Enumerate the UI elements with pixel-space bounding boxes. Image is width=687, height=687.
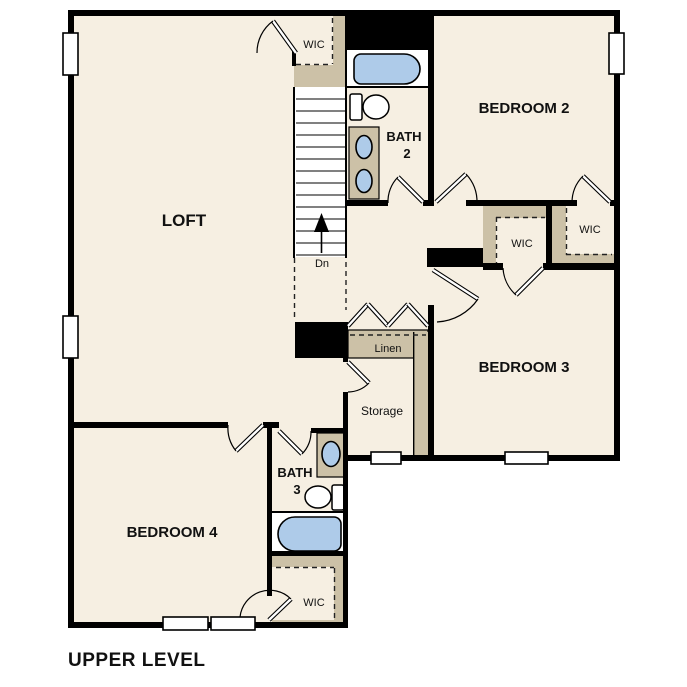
wall-bedroom3-left — [428, 305, 434, 455]
toilet-icon — [332, 485, 344, 510]
toilet-icon — [363, 95, 389, 119]
toilet-icon — [305, 486, 331, 508]
sink-icon — [322, 442, 340, 467]
wic-bedroom4-label: WIC — [303, 597, 324, 609]
wall-wic-divider — [546, 206, 552, 266]
bedroom2-label: BEDROOM 2 — [479, 100, 570, 117]
bath2-label: BATH — [386, 129, 421, 144]
wall-under-wic2 — [552, 263, 614, 270]
toilet-icon — [350, 94, 362, 120]
bath3-label: BATH — [277, 465, 312, 480]
floor-plan-page: LOFT BEDROOM 2 BEDROOM 3 BEDROOM 4 BATH … — [0, 0, 687, 687]
storage-label: Storage — [361, 404, 403, 418]
storage-shelf-edge — [413, 332, 414, 455]
wic-loft-shelf-bottom — [294, 65, 345, 87]
wall-bedroom2-left — [428, 16, 434, 200]
bedroom4-label: BEDROOM 4 — [127, 524, 219, 541]
storage-shelf-band — [414, 332, 428, 455]
linen-label: Linen — [375, 343, 402, 355]
wic-bedroom3-label: WIC — [511, 238, 532, 250]
window — [609, 33, 624, 74]
wall-exterior-right — [614, 10, 620, 461]
wall-tub-niche-edge — [347, 86, 428, 88]
bathtub-icon — [278, 517, 341, 551]
bathtub-icon — [354, 54, 420, 84]
wall-jamb — [423, 200, 434, 206]
wall-plumbing-chase — [345, 10, 434, 50]
wall-bedroom4-north — [74, 422, 228, 428]
window — [63, 316, 78, 358]
wall-bedroom2-south-end — [610, 200, 620, 206]
wall-jamb — [263, 422, 279, 428]
wall-bath3-north — [311, 428, 345, 433]
wic-bedroom2-label: WIC — [579, 224, 600, 236]
wall-bedroom2-south — [466, 200, 577, 206]
stairs-down-label: Dn — [315, 258, 329, 270]
wall-under-wic3 — [483, 263, 503, 270]
window — [163, 617, 208, 630]
bedroom3-label: BEDROOM 3 — [479, 359, 570, 376]
wall-column-right — [343, 392, 348, 628]
plan-level-title: UPPER LEVEL — [68, 650, 205, 671]
window — [63, 33, 78, 75]
wall-bath3-south — [272, 551, 345, 556]
wall-bedroom4-right — [267, 428, 272, 596]
loft-label: LOFT — [162, 211, 207, 230]
wall-storage-left — [343, 358, 348, 362]
window — [371, 452, 401, 464]
floor-plan: LOFT BEDROOM 2 BEDROOM 3 BEDROOM 4 BATH … — [0, 0, 687, 687]
wall-tub-niche-edge — [272, 511, 345, 513]
wall-stair-base-block — [295, 322, 348, 358]
sink-icon — [356, 136, 372, 159]
wall-stair-left-thin — [293, 87, 295, 258]
wall-stair-right-thin — [345, 50, 347, 258]
window — [211, 617, 255, 630]
wic-bedroom4-floor — [272, 567, 334, 620]
bath2-number: 2 — [403, 146, 410, 161]
wall-under-wic3 — [543, 263, 552, 270]
wall-bath2-south — [347, 200, 388, 206]
sink-icon — [356, 170, 372, 193]
bath3-number: 3 — [293, 482, 300, 497]
window — [505, 452, 548, 464]
wall-hall-block — [427, 248, 483, 267]
wic-loft-label: WIC — [303, 39, 324, 51]
wall-exterior-top — [68, 10, 620, 16]
